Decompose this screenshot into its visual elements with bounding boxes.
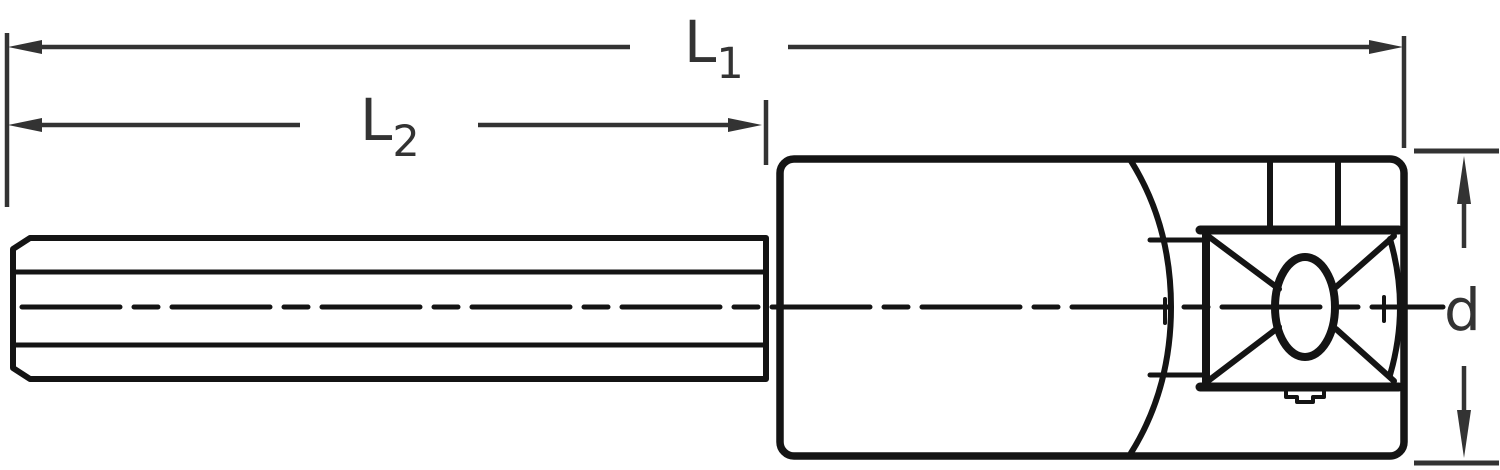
technical-drawing-canvas: L1 L2 d [0, 0, 1500, 470]
label-d: d [1444, 276, 1481, 344]
label-l2-base: L [360, 86, 392, 154]
label-d-base: d [1444, 276, 1481, 344]
l2-arrowhead-right [728, 118, 762, 132]
label-l1-base: L [684, 8, 716, 76]
label-l2-subscript: 2 [392, 117, 419, 167]
chamfer-line-tr [1336, 236, 1394, 287]
socket-technical-drawing: L1 L2 d [0, 0, 1500, 470]
l1-arrowhead-left [8, 40, 42, 54]
label-l2: L2 [360, 86, 420, 167]
detent-notch-bottom [1286, 390, 1324, 402]
hatch-area-bottom [1135, 382, 1398, 452]
l1-arrowhead-right [1369, 40, 1403, 54]
label-l1: L1 [684, 8, 744, 89]
chamfer-line-br [1336, 329, 1394, 381]
d-arrowhead-down [1457, 410, 1471, 458]
label-l1-subscript: 1 [716, 39, 743, 89]
d-arrowhead-up [1457, 156, 1471, 204]
l2-arrowhead-left [8, 118, 42, 132]
chamfer-line-bl [1208, 327, 1279, 381]
hatch-area-top-right [1336, 161, 1398, 232]
chamfer-line-tl [1208, 236, 1279, 289]
